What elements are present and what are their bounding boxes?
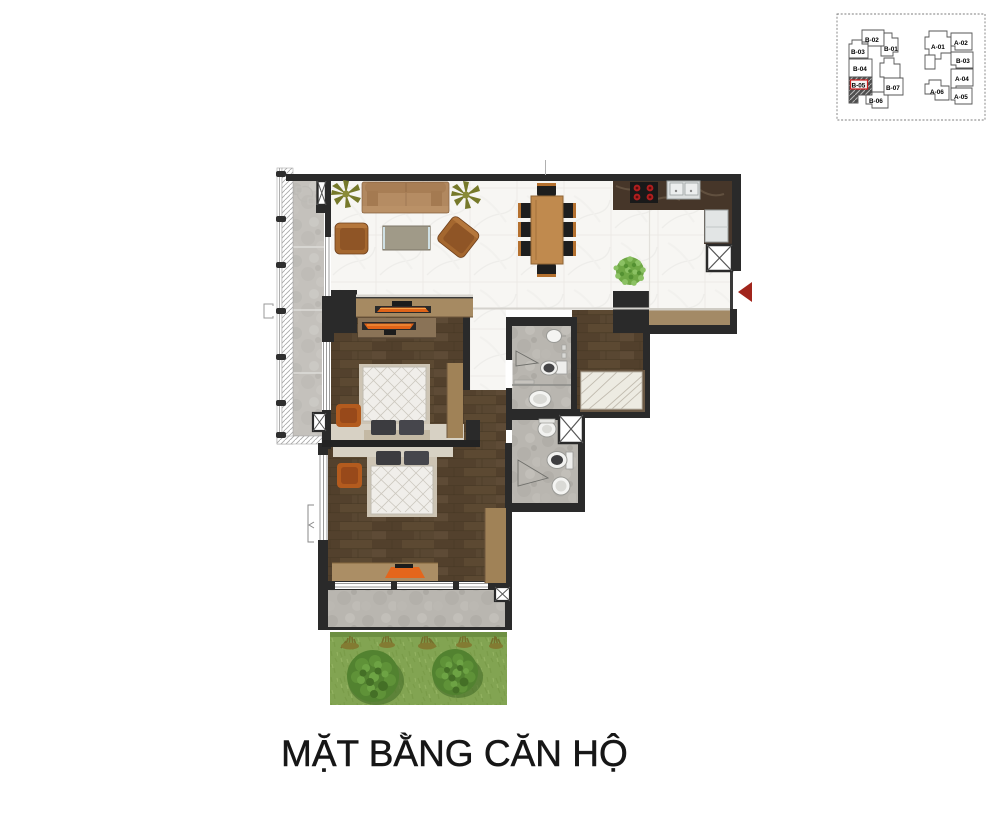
svg-text:B-03: B-03 xyxy=(956,58,970,65)
svg-text:B-04: B-04 xyxy=(853,66,867,73)
svg-text:A-04: A-04 xyxy=(955,76,969,83)
svg-text:B-01: B-01 xyxy=(884,46,898,53)
svg-text:B-05: B-05 xyxy=(852,83,866,90)
svg-text:A-06: A-06 xyxy=(930,89,944,96)
svg-text:A-02: A-02 xyxy=(954,40,968,47)
svg-text:MẶT BẰNG CĂN HỘ: MẶT BẰNG CĂN HỘ xyxy=(281,733,628,774)
svg-text:A-01: A-01 xyxy=(931,44,945,51)
svg-text:B-03: B-03 xyxy=(851,49,865,56)
svg-text:B-02: B-02 xyxy=(865,37,879,44)
svg-text:B-07: B-07 xyxy=(886,85,900,92)
svg-text:B-06: B-06 xyxy=(869,98,883,105)
svg-text:A-05: A-05 xyxy=(954,94,968,101)
